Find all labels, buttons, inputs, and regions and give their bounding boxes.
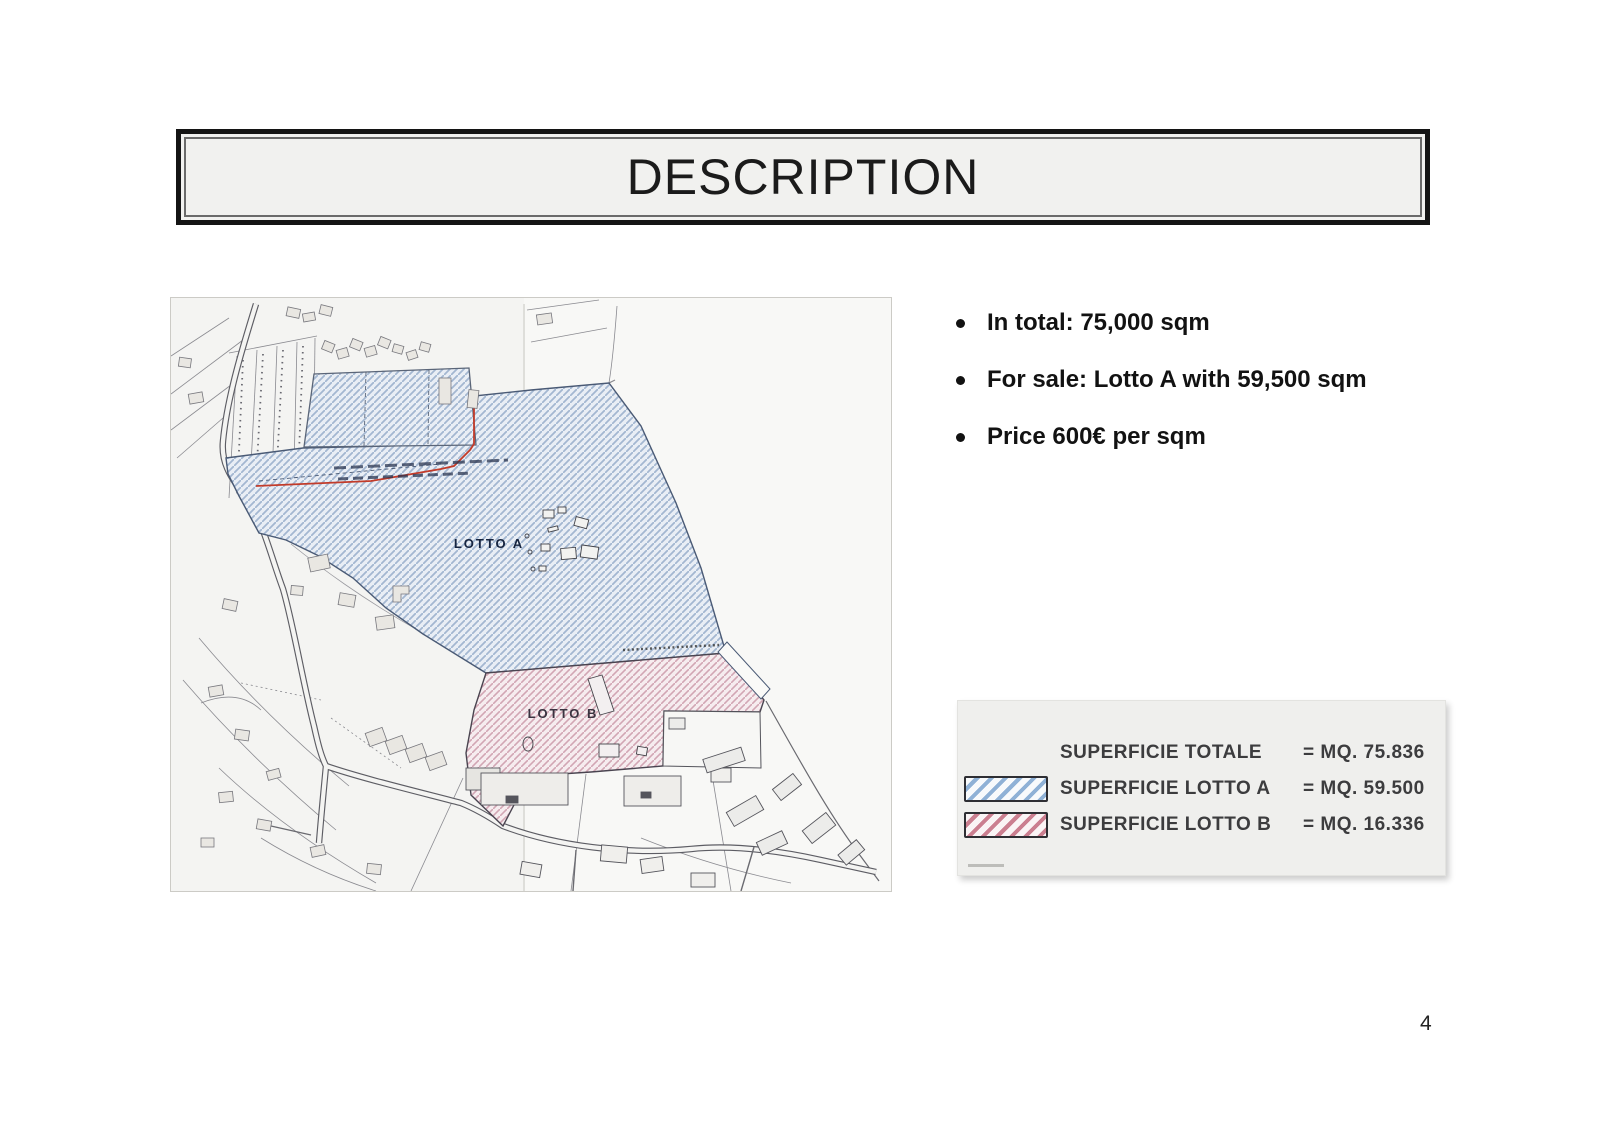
bullet-dot-icon — [956, 433, 965, 442]
legend-value: = MQ. 59.500 — [1303, 778, 1445, 800]
bullet-dot-icon — [956, 376, 965, 385]
bullet-text: Price 600€ per sqm — [987, 423, 1206, 451]
bullet-item: For sale: Lotto A with 59,500 sqm — [948, 366, 1528, 394]
bullet-list: In total: 75,000 sqm For sale: Lotto A w… — [948, 309, 1528, 480]
page-title: DESCRIPTION — [627, 148, 980, 206]
lotto-a-label: LOTTO A — [454, 536, 524, 551]
legend-swatch-pink-hatch — [964, 812, 1048, 838]
legend-swatch-blue-hatch — [964, 776, 1048, 802]
slide: DESCRIPTION — [0, 0, 1600, 1130]
bullet-text: For sale: Lotto A with 59,500 sqm — [987, 366, 1367, 394]
legend-box: SUPERFICIE TOTALE = MQ. 75.836 SUPERFICI… — [957, 700, 1446, 876]
legend-value: = MQ. 16.336 — [1303, 814, 1445, 836]
bullet-text: In total: 75,000 sqm — [987, 309, 1210, 337]
cadastral-map: LOTTO A LOTTO B — [171, 298, 891, 891]
title-box-inner: DESCRIPTION — [184, 137, 1422, 217]
legend-label: SUPERFICIE TOTALE — [1060, 742, 1303, 764]
title-box: DESCRIPTION — [176, 129, 1430, 225]
legend-value: = MQ. 75.836 — [1303, 742, 1445, 764]
legend-label: SUPERFICIE LOTTO B — [1060, 814, 1303, 836]
legend-row-totale: SUPERFICIE TOTALE = MQ. 75.836 — [958, 735, 1445, 771]
lotto-b-label: LOTTO B — [528, 706, 599, 721]
bullet-dot-icon — [956, 319, 965, 328]
legend-row-lotto-b: SUPERFICIE LOTTO B = MQ. 16.336 — [958, 807, 1445, 843]
cadastral-map-figure: LOTTO A LOTTO B — [170, 297, 892, 892]
legend-scribble — [968, 864, 1004, 867]
page-number: 4 — [1420, 1012, 1432, 1036]
legend-label: SUPERFICIE LOTTO A — [1060, 778, 1303, 800]
bullet-item: Price 600€ per sqm — [948, 423, 1528, 451]
bullet-item: In total: 75,000 sqm — [948, 309, 1528, 337]
legend-row-lotto-a: SUPERFICIE LOTTO A = MQ. 59.500 — [958, 771, 1445, 807]
